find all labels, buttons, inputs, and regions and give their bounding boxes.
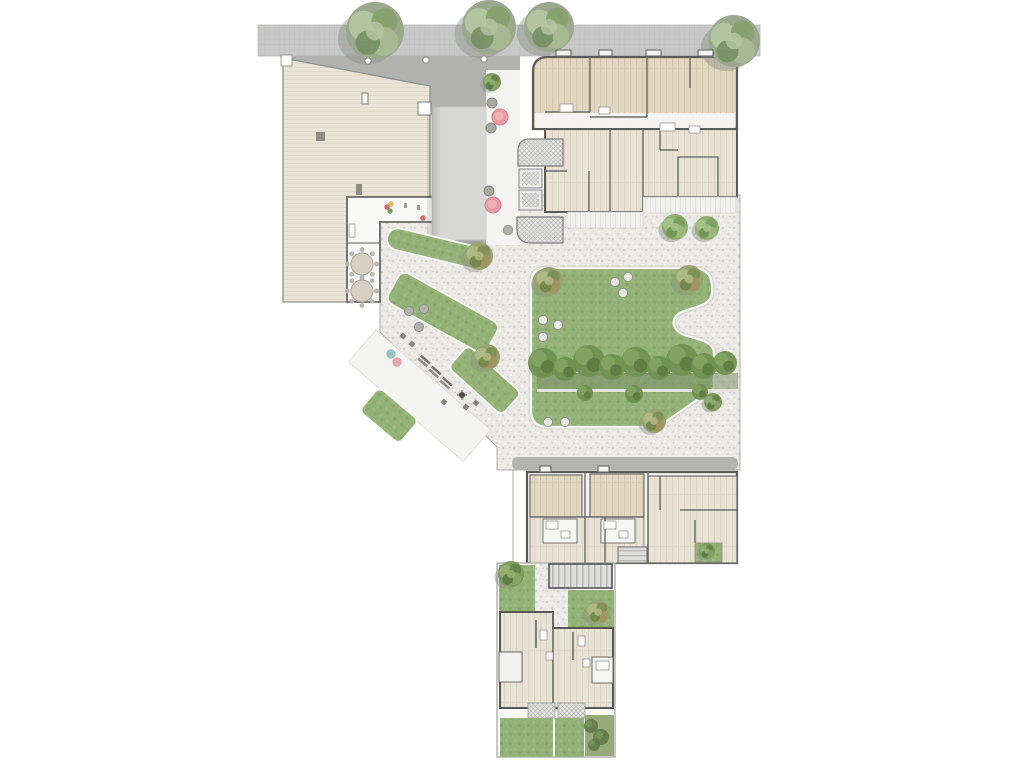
fixture [546,521,558,529]
chair [349,278,354,283]
fixture [660,123,675,131]
tree-crown [671,223,679,231]
site-plan-drawing [0,0,1024,768]
roof-marker [281,55,292,66]
round-table [351,280,373,302]
hedge-shrub-dark [702,363,714,375]
tree-crown [483,353,491,361]
hedge-shrub-dark [584,391,591,398]
stepping-stone [543,417,552,426]
fixture [560,104,573,112]
terrace-2 [590,474,644,517]
tree-crown [710,399,716,405]
tree-crown [541,19,557,35]
balcony-mid-1-grate [522,172,539,185]
chair [349,251,354,256]
hedge-shrub-dark [610,364,622,376]
rear-garden-1 [500,718,553,757]
chair [345,289,350,294]
fixture [689,126,700,133]
terrace-1 [530,475,582,517]
pink-planter-highlight [495,112,504,121]
fixture [583,659,590,667]
chair [349,299,354,304]
roof-marker [356,184,362,195]
passage-white-paving [486,70,520,245]
chair [370,278,375,283]
site-plan-canvas [0,0,1024,768]
roof-vent [540,466,551,472]
hedge-shrub-dark [657,366,668,377]
roof-vent [646,50,661,56]
rear-deck-2 [558,703,585,718]
stepping-stone [414,322,423,331]
stone-planter [487,98,497,108]
bollard [481,56,487,62]
rear-deck-1 [528,703,555,718]
chair [349,272,354,277]
stepping-stone [503,225,512,234]
garden-shrub-light [589,740,595,746]
chair [370,299,375,304]
stepping-stone [404,306,413,315]
stepping-stone [553,320,562,329]
fixture [604,521,616,529]
stepping-stone [419,304,428,313]
hedge-shrub-dark [699,390,706,397]
chair [360,303,365,308]
round-table [351,253,373,275]
roof-vent [598,466,609,472]
amenity-dot-green [387,208,392,213]
rear-garden-2 [555,718,584,757]
roof-marker [316,132,325,141]
stepping-stone [538,315,547,324]
hedge-shrub-dark [587,358,601,372]
chair [370,251,375,256]
hedge-shrub-dark [541,360,555,374]
tree-crown [685,275,694,284]
roof-vent [599,50,612,56]
chair [360,247,365,252]
amenity-dot-teal [387,350,396,359]
tree-crown [703,224,711,232]
bollard [423,57,429,63]
entry-stairs [549,564,612,588]
tree-crown [594,608,602,616]
pink-planter-highlight [488,200,497,209]
hedge-shrub-dark [634,359,648,373]
garden-shrub-light [595,731,603,739]
chair [370,272,375,277]
fixture [596,661,609,670]
tree-crown [650,417,658,425]
amenity-dot-red [420,215,425,220]
tree-crown [704,548,709,553]
canopy-edge-shade [432,107,441,240]
upper-corridor [535,113,735,128]
tree-crown [726,33,743,50]
fixture [561,531,570,538]
amenity-dot-pink [393,358,402,367]
hedge-shrub-dark [633,392,641,400]
fixture [619,531,628,538]
floor-mark [417,205,420,210]
balcony-mid-2-grate [522,193,539,207]
fixture [546,652,553,660]
roof-marker [418,102,431,115]
chair [374,262,379,267]
tree-crown [545,277,554,286]
east-unit [648,476,737,563]
roof-vent [698,50,713,56]
balcony-grate-lower [517,217,563,243]
bollard [365,58,371,64]
hedge-shrub-dark [563,367,574,378]
garden-shrub-light [586,721,593,728]
roof-vent [556,50,571,56]
tree-crown [366,22,385,41]
stair-flight [618,547,647,563]
floor-mark [404,203,407,208]
chair [360,274,365,279]
side-patio [499,652,522,682]
balcony-grate-upper [518,139,563,166]
stepping-stone [610,277,619,286]
hedge-shrub-dark [723,361,734,372]
amenity-dot-yellow [388,201,393,206]
roof-marker [362,93,368,104]
stepping-stone [538,332,547,341]
fixture [578,636,585,646]
stepping-stone [618,288,627,297]
tree-crown [475,252,484,261]
stepping-stone [623,272,632,281]
rear-patio-strip-2 [643,197,737,213]
chair [374,289,379,294]
stone-planter [484,186,494,196]
stone-planter [486,123,496,133]
fixture [540,630,547,640]
tree-crown [507,570,515,578]
rear-patio-strip-1 [567,212,643,228]
stepping-stone [560,417,569,426]
fixture [599,107,610,114]
tree-crown [480,18,497,35]
fixture [349,224,355,237]
tree-crown [489,79,495,85]
chair [345,262,350,267]
